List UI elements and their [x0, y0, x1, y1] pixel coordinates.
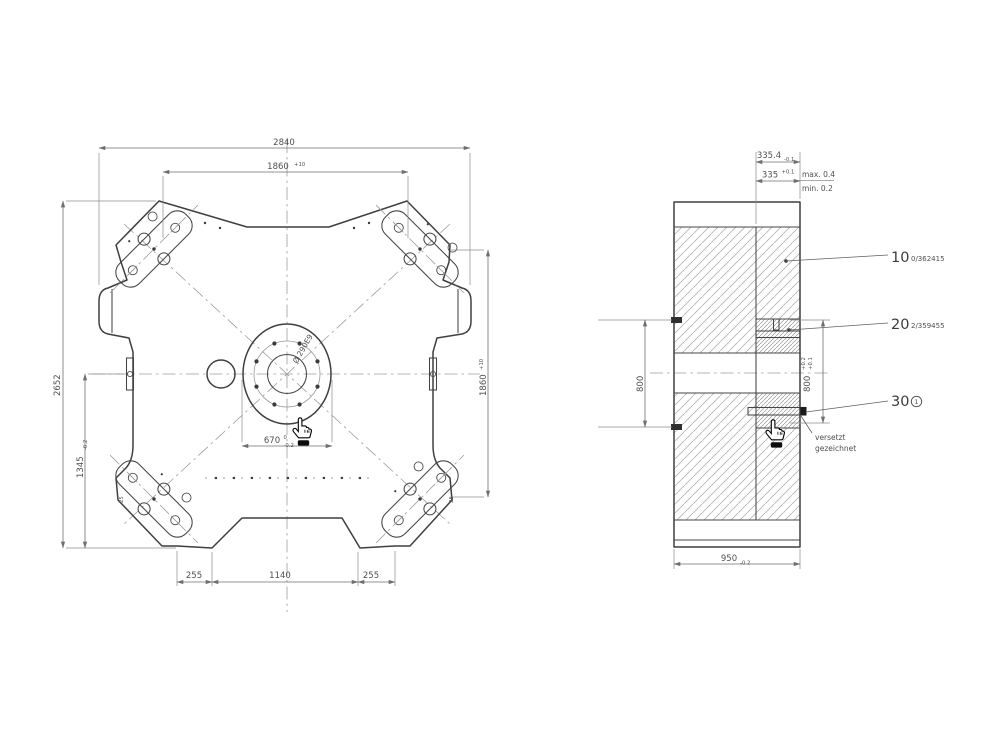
dim-circle-tol-bot: -0.2: [284, 443, 294, 449]
note-radius-left: 25: [119, 496, 125, 503]
dim-step-inner-tol: +0.1: [782, 170, 795, 176]
dim-slot-tol-bot: +0.1: [808, 357, 814, 370]
offset-note-line2: gezeichnet: [815, 444, 856, 453]
dim-step-outer-tol: -0.1: [784, 157, 794, 163]
dim-right-height: 1860: [479, 374, 489, 396]
dim-step-inner: 335: [762, 171, 778, 181]
dim-total-height: 2652: [53, 374, 63, 396]
dim-section-width: 950: [721, 554, 737, 564]
dim-lower-height: 1345: [76, 456, 86, 478]
part-20-ref: 2/359455: [911, 322, 945, 330]
dim-pin-spacing: 800: [636, 376, 646, 392]
stud-left-lower: [671, 424, 682, 430]
section-view[interactable]: 335.4 -0.1 335 +0.1 max. 0.4 min. 0.2 80…: [598, 151, 945, 569]
dim-step-outer: 335.4: [757, 151, 781, 161]
insert-20-hatch: [756, 319, 800, 353]
bore-dimension-label: Ø 290E9: [291, 332, 315, 365]
corner-slot-top-left: [90, 185, 212, 307]
gap-max-label: max. 0.4: [802, 170, 835, 179]
dim-section-width-group: 950 -0.2: [674, 549, 800, 569]
dim-total-width: 2840: [273, 138, 295, 148]
offset-note: versetzt gezeichnet: [801, 416, 856, 453]
part-30-index: 1: [914, 398, 918, 406]
dim-inner-width: 1860: [267, 162, 289, 172]
dim-section-width-tol: -0.2: [740, 561, 750, 567]
part-10-ref: 0/362415: [911, 255, 945, 263]
section-dimensions-top: 335.4 -0.1 335 +0.1 max. 0.4 min. 0.2: [756, 151, 835, 224]
part-10-number: 10: [891, 250, 909, 266]
key-lower-end: [801, 407, 807, 416]
corner-slot-bottom-left: [96, 435, 218, 557]
stud-left-upper: [671, 317, 682, 323]
dim-bottom-right: 255: [363, 571, 379, 581]
dim-right-height-tol: +10: [479, 358, 485, 370]
dim-slot-tol-top: +0.2: [801, 357, 807, 370]
dim-bottom-left: 255: [186, 571, 202, 581]
part-30-number: 30: [891, 394, 909, 410]
dim-lower-height-tol: -0.2: [83, 440, 89, 450]
note-radius-right: 25: [449, 496, 455, 503]
dim-slot-spacing: 800: [803, 376, 813, 392]
dim-pin-spacing-group: 800: [636, 320, 646, 427]
stud-row-dots: [215, 477, 361, 479]
dim-inner-width-tol: +10: [294, 162, 306, 168]
part-20-number: 20: [891, 317, 909, 333]
dim-bottom-center: 1140: [269, 571, 291, 581]
gap-min-label: min. 0.2: [802, 184, 833, 193]
drawing-canvas[interactable]: Ø 290E9 2840 1860 +10 2652 1345 -0.2 186…: [0, 0, 1000, 750]
plan-view[interactable]: Ø 290E9 2840 1860 +10 2652 1345 -0.2 186…: [53, 138, 489, 612]
hand-cursor-icon: [293, 418, 311, 446]
dim-circle: 670: [264, 436, 280, 446]
offset-note-line1: versetzt: [815, 433, 846, 442]
